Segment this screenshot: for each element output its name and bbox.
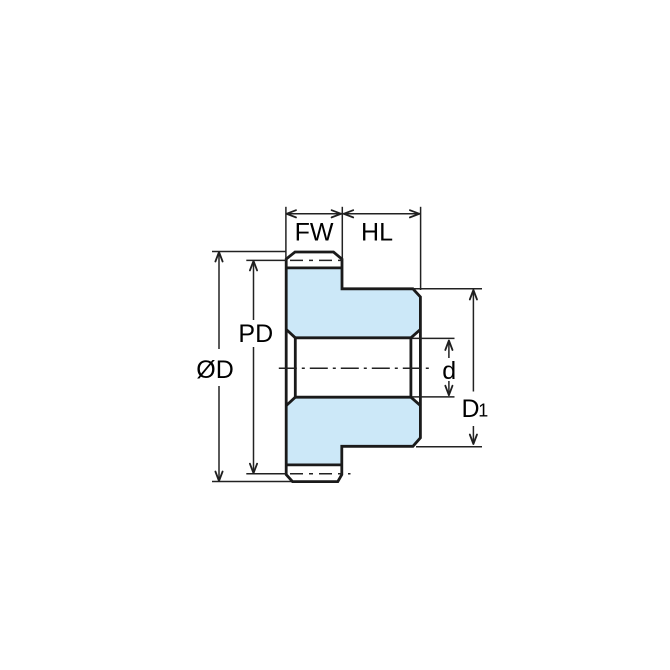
svg-text:HL: HL bbox=[361, 219, 393, 247]
svg-text:d: d bbox=[442, 357, 456, 385]
svg-text:FW: FW bbox=[295, 219, 334, 247]
svg-text:1: 1 bbox=[478, 401, 488, 421]
svg-text:ØD: ØD bbox=[196, 356, 234, 384]
svg-text:PD: PD bbox=[238, 320, 273, 348]
svg-text:D: D bbox=[462, 395, 480, 423]
